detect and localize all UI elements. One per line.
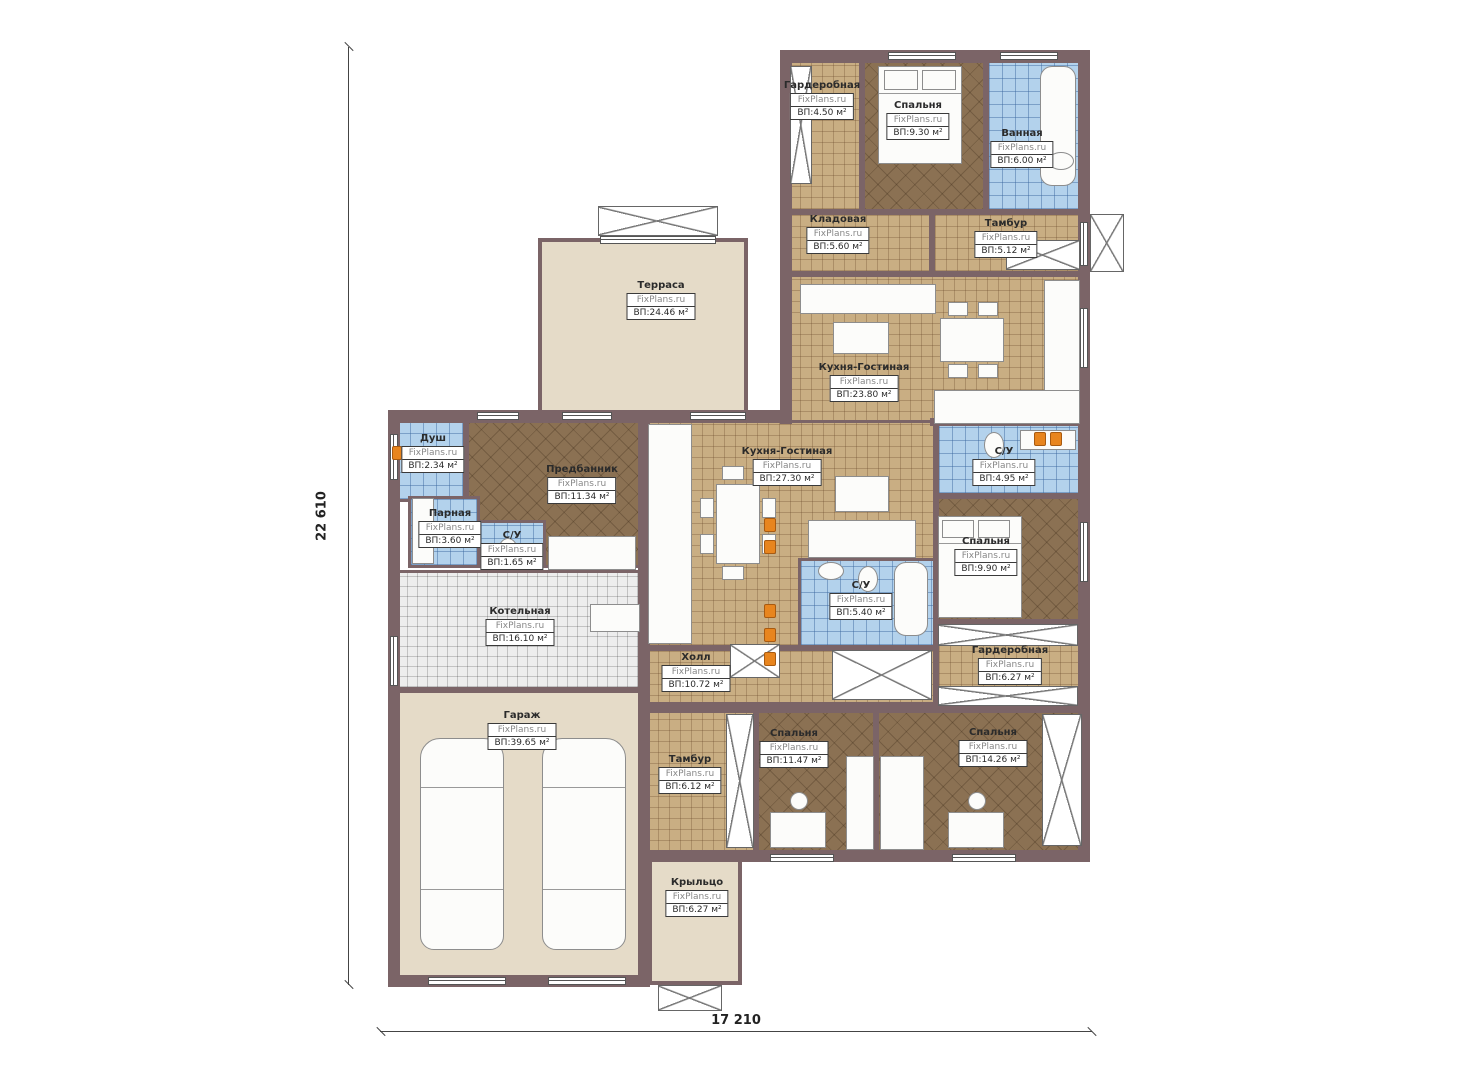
chair	[790, 792, 808, 810]
watermark: FixPlans.ru	[419, 522, 480, 535]
watermark: FixPlans.ru	[761, 742, 828, 755]
watermark: FixPlans.ru	[487, 620, 554, 633]
kitchen-counter	[648, 424, 692, 644]
watermark: FixPlans.ru	[955, 550, 1016, 563]
desk	[948, 812, 1004, 848]
room-label-wardrobe-top: Гардеробная FixPlans.ruВП:4.50 м²	[784, 80, 860, 120]
watermark: FixPlans.ru	[991, 142, 1052, 155]
watermark: FixPlans.ru	[831, 376, 898, 389]
room-area: ВП:11.34 м²	[548, 491, 615, 503]
room-name: Парная	[418, 508, 481, 520]
chair	[978, 302, 998, 316]
room-label-steam-room: Парная FixPlans.ruВП:3.60 м²	[418, 508, 481, 548]
door-gap	[390, 636, 398, 686]
room-name: Гардеробная	[972, 645, 1048, 657]
room-name: Кухня-Гостиная	[742, 446, 833, 458]
window	[1000, 52, 1058, 60]
watermark: FixPlans.ru	[960, 741, 1027, 754]
room-label-wardrobe-right: Гардеробная FixPlans.ruВП:6.27 м²	[972, 645, 1048, 685]
window	[770, 854, 834, 862]
closet-x-icon	[938, 686, 1078, 706]
watermark: FixPlans.ru	[663, 666, 730, 679]
window-symbol-icon	[598, 206, 718, 236]
room-label-bedroom-top: Спальня FixPlans.ruВП:9.30 м²	[886, 100, 949, 140]
room-name: Спальня	[954, 536, 1017, 548]
dining-table	[940, 318, 1004, 362]
dining-table	[716, 484, 760, 564]
car	[420, 738, 504, 950]
door-gap	[1080, 222, 1088, 266]
car	[542, 738, 626, 950]
room-name: Гардеробная	[784, 80, 860, 92]
room-area: ВП:6.27 м²	[979, 672, 1040, 684]
room-porch	[648, 855, 742, 985]
room-name: Кладовая	[806, 214, 869, 226]
room-area: ВП:9.90 м²	[955, 563, 1016, 575]
room-label-shower: Душ FixPlans.ruВП:2.34 м²	[401, 433, 464, 473]
watermark: FixPlans.ru	[754, 460, 821, 473]
room-name: Холл	[662, 652, 731, 664]
room-terrace	[538, 238, 748, 418]
chair	[722, 566, 744, 580]
room-name: Душ	[401, 433, 464, 445]
window	[1080, 522, 1088, 582]
room-name: Предбанник	[546, 464, 618, 476]
room-name: Гараж	[488, 710, 557, 722]
window	[600, 236, 716, 244]
room-area: ВП:4.95 м²	[973, 473, 1034, 485]
room-label-terrace: Терраса FixPlans.ruВП:24.46 м²	[627, 280, 696, 320]
radiator-icon	[1034, 432, 1046, 446]
room-name: Тамбур	[658, 754, 721, 766]
room-label-vestibule-bottom: Тамбур FixPlans.ruВП:6.12 м²	[658, 754, 721, 794]
room-name: Спальня	[760, 728, 829, 740]
room-area: ВП:9.30 м²	[887, 127, 948, 139]
coffee-table	[833, 322, 889, 354]
watermark: FixPlans.ru	[548, 478, 615, 491]
room-label-wc-top-right: С/У FixPlans.ruВП:4.95 м²	[972, 446, 1035, 486]
dimension-width-label: 17 210	[711, 1013, 761, 1028]
room-label-wc-small: С/У FixPlans.ruВП:1.65 м²	[480, 530, 543, 570]
window	[1080, 308, 1088, 368]
sofa	[808, 520, 916, 558]
watermark: FixPlans.ru	[830, 594, 891, 607]
pillow	[922, 70, 956, 90]
door-gap	[690, 412, 746, 420]
room-name: Спальня	[959, 727, 1028, 739]
watermark: FixPlans.ru	[489, 724, 556, 737]
window	[562, 412, 612, 420]
bathtub	[894, 562, 928, 636]
sofa	[800, 284, 936, 314]
watermark: FixPlans.ru	[979, 659, 1040, 672]
room-name: Спальня	[886, 100, 949, 112]
dimension-line-vertical	[348, 47, 349, 985]
room-area: ВП:11.47 м²	[761, 755, 828, 767]
room-label-sauna-anteroom: Предбанник FixPlans.ruВП:11.34 м²	[546, 464, 618, 504]
room-name: Крыльцо	[665, 877, 728, 889]
wall-left	[388, 410, 400, 987]
closet-x-icon	[938, 624, 1078, 646]
room-name: Терраса	[627, 280, 696, 292]
room-area: ВП:2.34 м²	[402, 460, 463, 472]
porch-step-icon	[658, 985, 722, 1011]
chair	[968, 792, 986, 810]
chair	[978, 364, 998, 378]
chair	[762, 498, 776, 518]
room-label-kitchen-living-upper: Кухня-Гостиная FixPlans.ruВП:23.80 м²	[819, 362, 910, 402]
window	[952, 854, 1016, 862]
room-area: ВП:6.27 м²	[666, 904, 727, 916]
chair	[948, 302, 968, 316]
room-area: ВП:39.65 м²	[489, 737, 556, 749]
room-name: Ванная	[990, 128, 1053, 140]
room-area: ВП:23.80 м²	[831, 389, 898, 401]
watermark: FixPlans.ru	[973, 460, 1034, 473]
watermark: FixPlans.ru	[887, 114, 948, 127]
garage-door	[428, 977, 506, 985]
dimension-line-horizontal	[380, 1031, 1092, 1032]
room-label-hall: Холл FixPlans.ruВП:10.72 м²	[662, 652, 731, 692]
room-area: ВП:3.60 м²	[419, 535, 480, 547]
room-area: ВП:10.72 м²	[663, 679, 730, 691]
radiator-icon	[764, 628, 776, 642]
room-area: ВП:6.00 м²	[991, 155, 1052, 167]
tv-cabinet	[835, 476, 889, 512]
radiator-icon	[764, 540, 776, 554]
bed	[880, 756, 924, 850]
room-name: Тамбур	[974, 218, 1037, 230]
entry-door-icon	[1090, 214, 1124, 272]
wall-bottom-bedrooms	[640, 850, 1090, 862]
room-area: ВП:16.10 м²	[487, 633, 554, 645]
room-area: ВП:27.30 м²	[754, 473, 821, 485]
dimension-tick	[344, 42, 353, 51]
room-name: Кухня-Гостиная	[819, 362, 910, 374]
bed	[846, 756, 874, 850]
window	[888, 52, 956, 60]
watermark: FixPlans.ru	[666, 891, 727, 904]
watermark: FixPlans.ru	[481, 544, 542, 557]
room-label-bedroom-bottom-right: Спальня FixPlans.ruВП:14.26 м²	[959, 727, 1028, 767]
room-area: ВП:14.26 м²	[960, 754, 1027, 766]
room-label-storage: Кладовая FixPlans.ruВП:5.60 м²	[806, 214, 869, 254]
radiator-icon	[1050, 432, 1062, 446]
room-label-vestibule-top: Тамбур FixPlans.ruВП:5.12 м²	[974, 218, 1037, 258]
room-label-boiler: Котельная FixPlans.ruВП:16.10 м²	[486, 606, 555, 646]
room-label-kitchen-living-main: Кухня-Гостиная FixPlans.ruВП:27.30 м²	[742, 446, 833, 486]
watermark: FixPlans.ru	[402, 447, 463, 460]
room-label-bedroom-right: Спальня FixPlans.ruВП:9.90 м²	[954, 536, 1017, 576]
kitchen-counter	[934, 390, 1080, 424]
room-name: С/У	[829, 580, 892, 592]
sink	[818, 562, 844, 580]
watermark: FixPlans.ru	[791, 94, 852, 107]
sofa	[548, 536, 636, 570]
watermark: FixPlans.ru	[975, 232, 1036, 245]
radiator-icon	[764, 604, 776, 618]
room-area: ВП:6.12 м²	[659, 781, 720, 793]
room-area: ВП:5.60 м²	[807, 241, 868, 253]
room-label-garage: Гараж FixPlans.ruВП:39.65 м²	[488, 710, 557, 750]
room-area: ВП:5.12 м²	[975, 245, 1036, 257]
chair	[948, 364, 968, 378]
dimension-tick	[344, 980, 353, 989]
room-name: С/У	[972, 446, 1035, 458]
watermark: FixPlans.ru	[628, 294, 695, 307]
radiator-icon	[764, 518, 776, 532]
room-label-porch: Крыльцо FixPlans.ruВП:6.27 м²	[665, 877, 728, 917]
closet-x-icon	[832, 650, 932, 700]
room-area: ВП:24.46 м²	[628, 307, 695, 319]
room-label-wc-central: С/У FixPlans.ruВП:5.40 м²	[829, 580, 892, 620]
room-name: Котельная	[486, 606, 555, 618]
floor-plan-canvas: Гардеробная FixPlans.ruВП:4.50 м² Спальн…	[0, 0, 1474, 1080]
watermark: FixPlans.ru	[807, 228, 868, 241]
watermark: FixPlans.ru	[659, 768, 720, 781]
room-name: С/У	[480, 530, 543, 542]
room-label-bedroom-bottom-left: Спальня FixPlans.ruВП:11.47 м²	[760, 728, 829, 768]
chair	[700, 534, 714, 554]
garage-door	[548, 977, 626, 985]
chair	[700, 498, 714, 518]
room-area: ВП:5.40 м²	[830, 607, 891, 619]
pillow	[884, 70, 918, 90]
radiator-icon	[764, 652, 776, 666]
room-area: ВП:1.65 м²	[481, 557, 542, 569]
desk	[770, 812, 826, 848]
closet-x-icon	[1042, 714, 1082, 846]
closet-x-icon	[726, 714, 754, 848]
room-label-bathroom-top: Ванная FixPlans.ruВП:6.00 м²	[990, 128, 1053, 168]
boiler-unit	[590, 604, 640, 632]
window	[477, 412, 519, 420]
dimension-height-label: 22 610	[315, 491, 330, 541]
room-area: ВП:4.50 м²	[791, 107, 852, 119]
